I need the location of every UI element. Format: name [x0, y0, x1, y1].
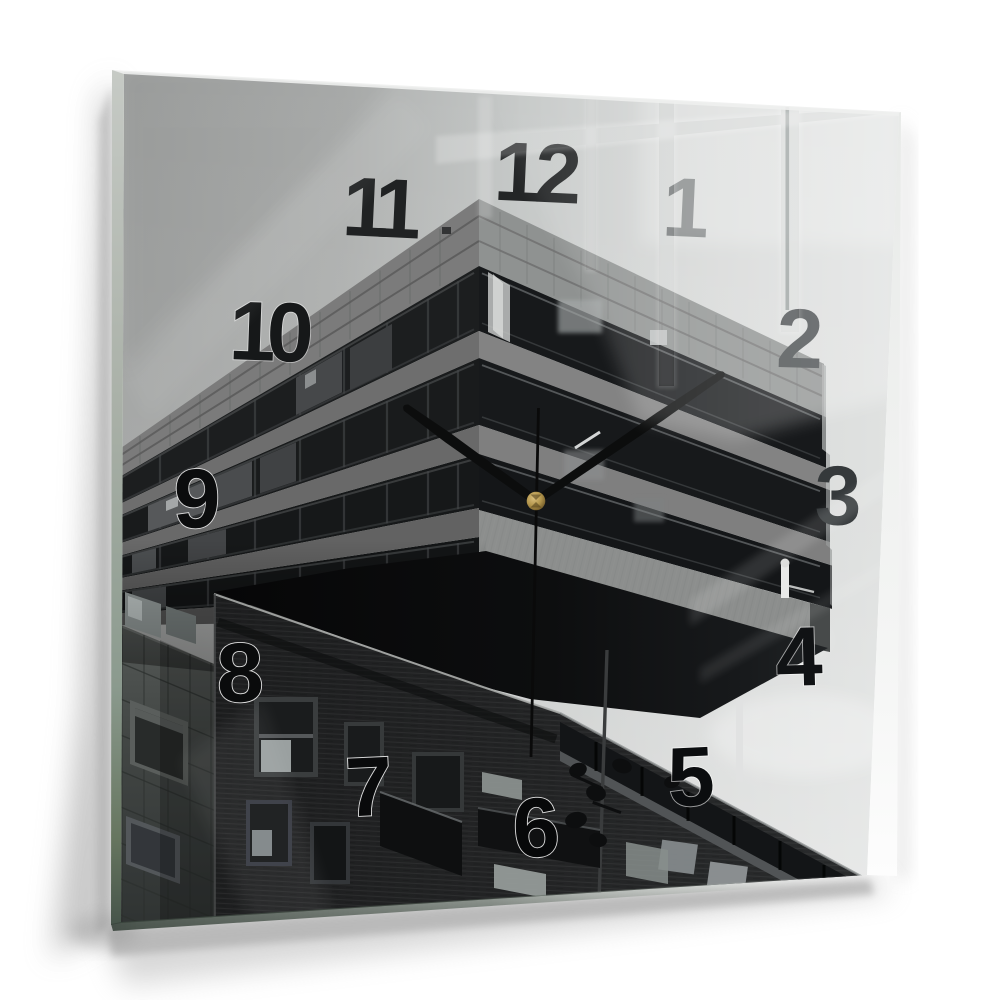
svg-text:6: 6	[510, 779, 562, 875]
svg-text:7: 7	[344, 738, 395, 834]
svg-text:9: 9	[173, 451, 220, 545]
svg-text:5: 5	[666, 728, 717, 824]
